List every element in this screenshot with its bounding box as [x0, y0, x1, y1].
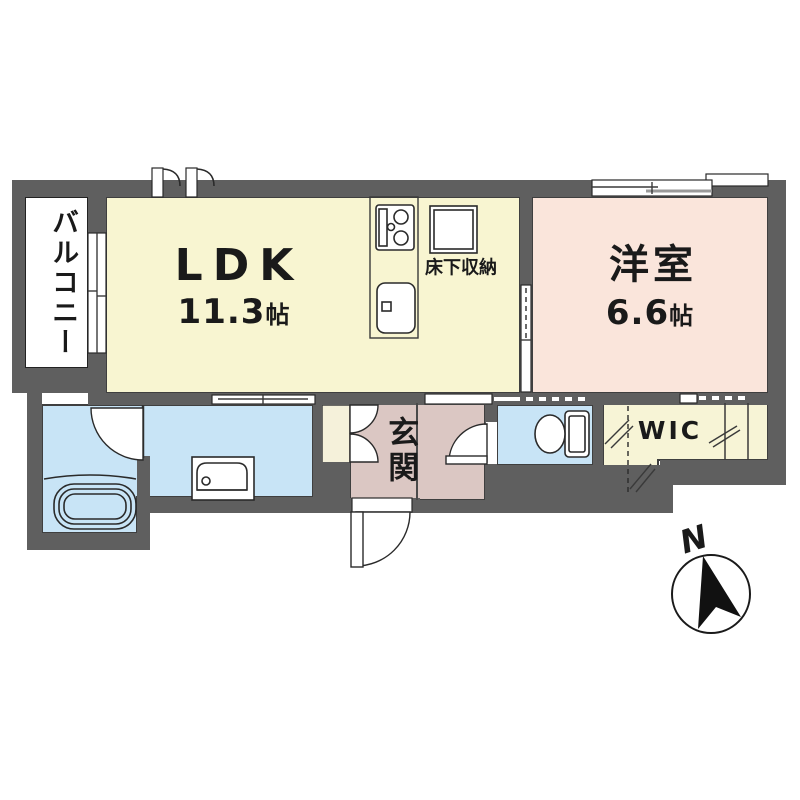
entrance-label: 玄関	[384, 416, 417, 486]
wall-under-cabinet	[318, 462, 350, 500]
shoe-cabinet	[322, 405, 350, 465]
western-room-area-value: 6.6	[606, 293, 669, 333]
ldk-area-unit: 帖	[265, 301, 290, 329]
underfloor-storage-icon	[430, 206, 477, 253]
bathroom-washroom-floor	[42, 405, 313, 533]
wall-wic-ext-bottom	[603, 495, 673, 513]
sliding-door-ldk-washroom-icon	[212, 395, 315, 404]
front-door-icon	[356, 512, 410, 566]
floorplan-drawing	[0, 0, 800, 800]
ldk-area: 11.3帖	[178, 295, 291, 331]
balcony-label: バルコニー	[48, 208, 76, 358]
toilet-door-leaf	[446, 456, 487, 464]
compass	[672, 555, 750, 633]
wall-bath-bottom	[27, 533, 150, 550]
wall-left-lower	[27, 393, 42, 550]
floorplan-canvas: バルコニー LDK 11.3帖 洋室 6.6帖 床下収納 玄関 WIC N	[0, 0, 800, 800]
entrance-doorway	[352, 498, 412, 512]
washbasin-icon	[192, 457, 254, 500]
wall-hall-bottom	[417, 500, 485, 513]
western-room-label: 洋室	[609, 244, 697, 286]
wall-bottom-right	[660, 460, 786, 485]
underfloor-storage-label: 床下収納	[425, 260, 497, 279]
stove-icon	[376, 205, 414, 250]
western-room-area-unit: 帖	[669, 302, 694, 330]
wall-left-upper	[12, 180, 25, 370]
wic-label: WIC	[638, 418, 702, 444]
wall-bath-right	[137, 456, 150, 533]
western-room-area: 6.6帖	[606, 296, 694, 332]
sliding-door-ldk-western-icon	[521, 285, 531, 392]
ldk-area-value: 11.3	[178, 292, 266, 332]
balcony-window-icon	[88, 233, 106, 353]
front-door-leaf	[351, 512, 363, 567]
kitchen-sink-icon	[377, 283, 415, 333]
ldk-label: LDK	[175, 243, 304, 289]
wall-right	[768, 188, 786, 483]
